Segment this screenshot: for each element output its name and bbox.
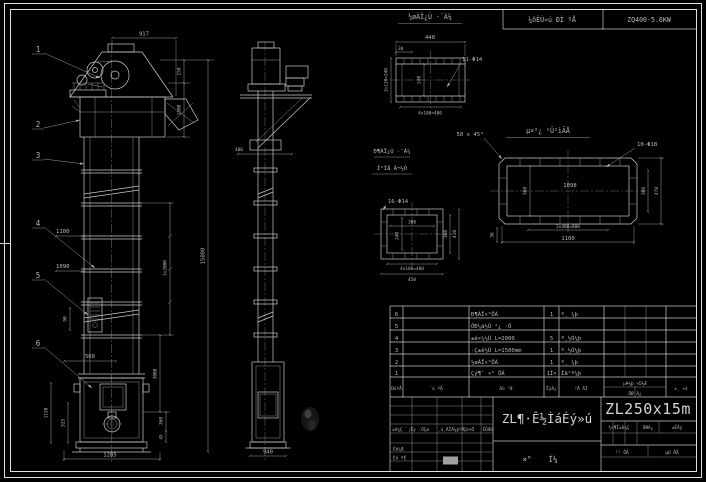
bom-no: 2 bbox=[395, 360, 398, 366]
dim-560: 560 bbox=[85, 354, 95, 360]
rev-header-c: Ç©×Ö bbox=[464, 426, 475, 433]
cad-svg: ¼õËÙ»ú ÐÍ ºÅ ZQ400-5.6KW bbox=[0, 0, 706, 482]
dim-15000: 15000 bbox=[201, 248, 207, 265]
audit-label: Éó ºË bbox=[393, 454, 407, 462]
model-designation: ZL250x15m bbox=[605, 400, 691, 418]
balloon-2: 2 bbox=[36, 120, 41, 129]
casing-flange-label-1: Ð¶ÁÏ¿Ú ·¨À¼ bbox=[373, 148, 411, 155]
bom-header-name: Ãû ³Æ bbox=[499, 385, 513, 392]
dim-300: 300 bbox=[408, 220, 416, 226]
sheet-total: ¹² ÕÅ bbox=[615, 449, 629, 456]
dim-90: 90 bbox=[63, 316, 69, 322]
dim-1150: 1150 bbox=[44, 407, 50, 418]
dim-1285: 1285 bbox=[103, 453, 116, 459]
side-view-dimensions: 400 940 bbox=[235, 147, 292, 456]
dim-16-phi14: 16-Φ14 bbox=[388, 199, 409, 205]
bom-table: 6 Ð¶ÁÏ×°ÖÃ 1 º¸ ¼þ 5 ÖÐ¼ä½Ú ²¿ ·Ö 4 ±ê×¼… bbox=[390, 306, 696, 397]
dim-450: 450 bbox=[408, 277, 416, 283]
bom-no: 4 bbox=[395, 336, 399, 342]
dim-325: 325 bbox=[61, 419, 67, 427]
dim-1100-base: 1100 bbox=[561, 236, 574, 242]
dim-45: 45 bbox=[159, 434, 165, 440]
dim-30: 30 bbox=[398, 46, 404, 52]
bom-name: ÖÐ¼ä½Ú ²¿ ·Ö bbox=[471, 323, 512, 330]
dim-11-phi14: 11-Φ14 bbox=[462, 57, 483, 63]
highlight-cell bbox=[443, 457, 458, 465]
dim-410: 410 bbox=[452, 230, 458, 238]
balloon-6: 6 bbox=[36, 339, 41, 348]
stage-header: ½×¶Î±ê¼Ç bbox=[608, 424, 630, 431]
title-block: ±ê¼Ç ´¦Êý ·ÖÇø ¸ü¸ÄÎÄ¼þºÅ Ç©×Ö ÈÕÆÚ Éè¼Æ… bbox=[390, 397, 696, 471]
dim-3x2000: 3x2000 bbox=[163, 260, 169, 276]
balloon-5: 5 bbox=[36, 271, 41, 280]
bom-material: º¸½Ó¼þ bbox=[561, 335, 582, 342]
bom-row: 1 Çý¶¯ ×° ÖÃ 1Ì× Íâ¹º¼þ bbox=[395, 369, 582, 377]
cad-drawing-canvas: ¼õËÙ»ú ÐÍ ºÅ ZQ400-5.6KW bbox=[0, 0, 706, 482]
dim-390: 390 bbox=[641, 187, 647, 195]
front-head-section bbox=[70, 44, 198, 137]
dim-440: 440 bbox=[425, 35, 435, 41]
bom-name: Ð¶ÁÏ×°ÖÃ bbox=[471, 311, 499, 318]
bom-name: ·Ç±ê½Ú L=1500mm bbox=[471, 347, 522, 354]
bom-qty: 1 bbox=[550, 312, 553, 318]
bom-row: 3 ·Ç±ê½Ú L=1500mm 1 º¸½Ó¼þ bbox=[395, 347, 582, 354]
chamfer-label: 50 x 45° bbox=[457, 132, 484, 138]
balloon-4: 4 bbox=[36, 219, 41, 228]
bom-qty: 1 bbox=[550, 348, 553, 354]
bom-material: Íâ¹º¼þ bbox=[561, 369, 582, 377]
bom-no: 6 bbox=[395, 312, 398, 318]
bom-row: 4 ±ê×¼½Ú L=2000 5 º¸½Ó¼þ bbox=[395, 335, 582, 342]
dim-1098: 1098 bbox=[563, 183, 577, 189]
base-flange-detail: µ×²¿ ¹Û²ìÃÅ 50 x 45° 10-Φ18 1098 360 390… bbox=[457, 126, 664, 244]
bom-no: 3 bbox=[395, 348, 398, 354]
dim-360: 360 bbox=[159, 417, 165, 425]
gearbox-label: ¼õËÙ»ú ÐÍ ºÅ bbox=[528, 15, 576, 24]
dim-150: 150 bbox=[177, 67, 183, 75]
dim-2x120: 2x120=240 bbox=[384, 68, 390, 92]
gearbox-header-strip: ¼õËÙ»ú ÐÍ ºÅ ZQ400-5.6KW bbox=[503, 10, 696, 29]
bom-qty: 5 bbox=[550, 336, 553, 342]
design-label: Éè¼Æ bbox=[393, 445, 404, 453]
rev-header-a: ±ê¼Ç ´¦Êý ·ÖÇø bbox=[392, 425, 429, 433]
sheet-number: µÚ ÕÅ bbox=[665, 449, 679, 456]
bom-header-weight-top: µ¥¼þ ×Ü¼Æ bbox=[623, 380, 647, 387]
gearbox-model: ZQ400-5.6KW bbox=[627, 16, 671, 24]
inlet-flange-label: ½øÁÏ¿Ú ·¨À¼ bbox=[408, 12, 452, 21]
dim-917: 917 bbox=[139, 32, 149, 38]
bom-header-material: ²Ä ÁÏ bbox=[574, 385, 588, 392]
bom-row: 6 Ð¶ÁÏ×°ÖÃ 1 º¸ ¼þ bbox=[395, 311, 579, 318]
bom-material: º¸ ¼þ bbox=[561, 359, 578, 366]
dim-1500: 1500 bbox=[177, 104, 183, 115]
subtitle-char-b: Í¼ bbox=[548, 455, 558, 464]
subtitle-char-a: ×° bbox=[522, 455, 531, 464]
casing-flange-detail: Ð¶ÁÏ¿Ú ·¨À¼ Í²Ìå Á¬½Ó 16-Φ14 300 240 360… bbox=[372, 148, 459, 283]
bom-material: º¸ ¼þ bbox=[561, 311, 578, 318]
drawing-title: ZL¶·Ê½ÌáÉý»ú bbox=[502, 411, 592, 426]
dim-casing-360: 360 bbox=[443, 230, 449, 238]
bom-name: ±ê×¼½Ú L=2000 bbox=[471, 335, 515, 342]
bom-row: 2 ½øÁÏ×°ÖÃ 1 º¸ ¼þ bbox=[395, 359, 579, 366]
dim-casing-240: 240 bbox=[395, 232, 401, 240]
dim-1100: 1100 bbox=[56, 229, 69, 235]
bom-header-weight-bottom: ÖØ Á¿ bbox=[628, 390, 642, 397]
bom-header-code: ´ú ºÅ bbox=[429, 385, 443, 392]
rev-header-d: ÈÕÆÚ bbox=[483, 425, 494, 433]
bom-header-row: ÐòºÅ ´ú ºÅ Ãû ³Æ ÊýÁ¿ ²Ä ÁÏ µ¥¼þ ×Ü¼Æ ÖØ… bbox=[391, 380, 688, 397]
balloon-1: 1 bbox=[36, 45, 41, 54]
dim-1090: 1090 bbox=[56, 264, 69, 270]
bom-qty: 1Ì× bbox=[546, 370, 556, 377]
dim-4x100-casing: 4x100=400 bbox=[400, 266, 424, 272]
weight-header: ÖØÁ¿ bbox=[643, 424, 654, 431]
dim-base-360: 360 bbox=[523, 187, 529, 195]
bom-header-no: ÐòºÅ bbox=[391, 385, 402, 392]
side-view: 400 940 bbox=[235, 42, 312, 462]
dim-470: 470 bbox=[654, 187, 660, 195]
balloon-3: 3 bbox=[36, 151, 41, 160]
bom-no: 5 bbox=[395, 324, 398, 330]
bom-name: Çý¶¯ ×° ÖÃ bbox=[471, 370, 505, 377]
bom-material: º¸½Ó¼þ bbox=[561, 347, 582, 354]
dim-3000: 3000 bbox=[153, 368, 159, 379]
dim-inlet-240: 240 bbox=[417, 76, 423, 84]
bom-header-qty: ÊýÁ¿ bbox=[546, 384, 557, 392]
inlet-flange-detail: ½øÁÏ¿Ú ·¨À¼ 440 30 240 11-Φ14 2x120=240 … bbox=[384, 12, 483, 117]
dim-10-phi18: 10-Φ18 bbox=[637, 142, 658, 148]
bom-no: 1 bbox=[395, 371, 398, 377]
bom-row: 5 ÖÐ¼ä½Ú ²¿ ·Ö bbox=[395, 323, 512, 330]
bom-qty: 1 bbox=[550, 360, 553, 366]
dim-400: 400 bbox=[235, 147, 243, 153]
dim-2x400: 2x400=800 bbox=[556, 224, 580, 230]
bom-header-remark: ±¸ ×¢ bbox=[674, 386, 688, 392]
dim-940: 940 bbox=[263, 450, 273, 456]
scale-header: ±ÈÀý bbox=[672, 423, 683, 431]
smudge bbox=[301, 407, 319, 431]
casing-flange-label-2: Í²Ìå Á¬½Ó bbox=[377, 164, 408, 172]
drawing-frame bbox=[0, 4, 702, 478]
front-view-dimensions: 917 150 1500 15000 3x2000 3000 360 45 bbox=[44, 32, 215, 462]
rev-header-b: ¸ü¸ÄÎÄ¼þºÅ bbox=[438, 426, 465, 433]
dim-36: 36 bbox=[490, 232, 496, 238]
bom-name: ½øÁÏ×°ÖÃ bbox=[471, 359, 499, 366]
dim-4x100-inlet: 4x100=400 bbox=[418, 111, 442, 117]
base-flange-label: µ×²¿ ¹Û²ìÃÅ bbox=[526, 126, 570, 135]
front-view: 917 150 1500 15000 3x2000 3000 360 45 bbox=[32, 32, 214, 463]
